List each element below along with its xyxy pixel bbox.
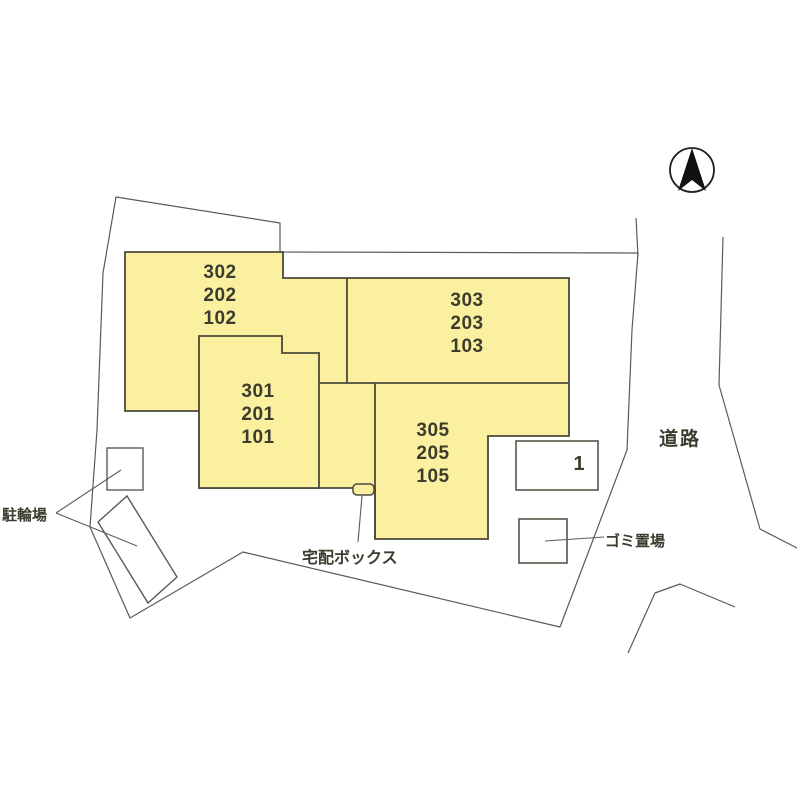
garbage-area-rect [519,519,567,563]
unit-number: 102 [170,307,270,330]
unit-number: 202 [170,284,270,307]
label-units-303: 303 203 103 [417,289,517,358]
unit-number: 303 [417,289,517,312]
delivery-box-label: 宅配ボックス [302,544,398,568]
road-bottom-curve [628,584,735,653]
leader-bicycle-square [56,470,121,513]
north-compass-icon [670,148,714,192]
parking-space-number: 1 [564,453,594,476]
unit-number: 103 [417,335,517,358]
road-label: 道路 [659,424,701,451]
bicycle-parking-label: 駐輪場 [2,504,47,525]
road-left-edge [636,218,638,256]
label-units-302: 302 202 102 [170,261,270,330]
unit-number: 305 [383,419,483,442]
label-units-301: 301 201 101 [208,380,308,449]
unit-number: 301 [208,380,308,403]
site-plan-canvas: 302 202 102 303 203 103 301 201 101 305 … [0,0,800,800]
leader-delivery-box [358,496,362,542]
unit-number: 101 [208,426,308,449]
bicycle-parking-rack [98,496,177,603]
bicycle-parking-square [107,448,143,490]
road-right-edge [719,237,797,548]
garbage-area-label: ゴミ置場 [605,530,665,551]
unit-number: 105 [383,465,483,488]
unit-number: 203 [417,312,517,335]
label-units-305: 305 205 105 [383,419,483,488]
unit-number: 201 [208,403,308,426]
unit-number: 302 [170,261,270,284]
unit-number: 205 [383,442,483,465]
site-plan-drawing [0,0,800,800]
delivery-box-marker [353,484,374,495]
